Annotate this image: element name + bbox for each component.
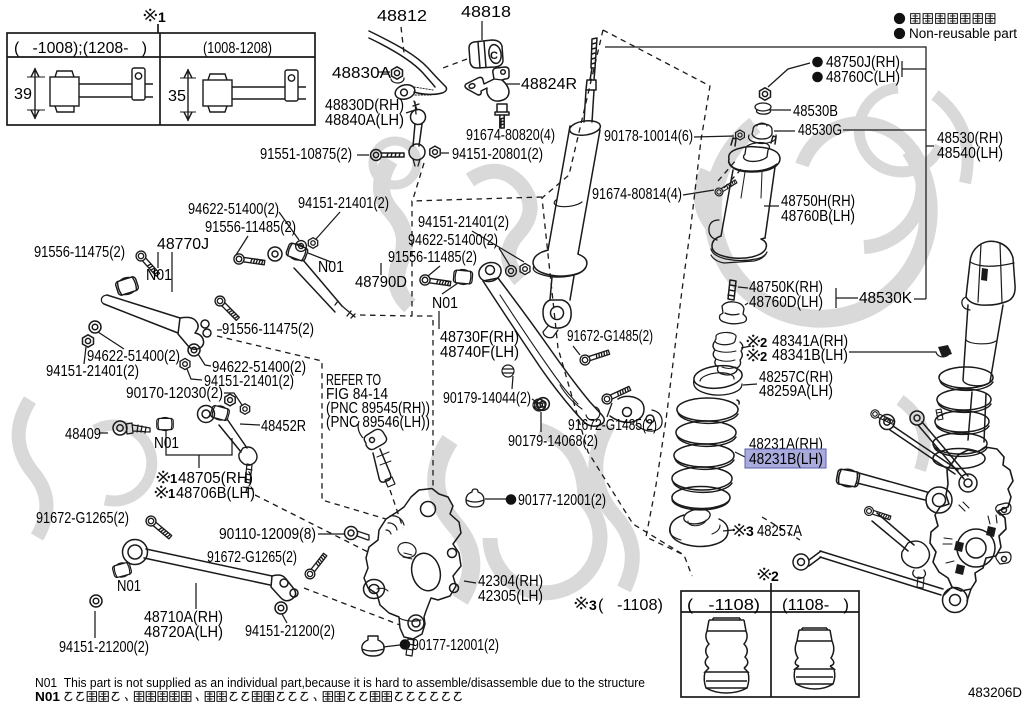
- svg-text:90177-12001(2): 90177-12001(2): [518, 492, 606, 509]
- svg-text:39: 39: [14, 86, 32, 103]
- svg-text:N01: N01: [117, 578, 141, 595]
- svg-text:2: 2: [760, 335, 767, 350]
- svg-text:91551-10875(2): 91551-10875(2): [260, 146, 352, 163]
- svg-text:94151-21200(2): 94151-21200(2): [245, 623, 335, 640]
- svg-text:48341B(LH): 48341B(LH): [772, 347, 848, 364]
- svg-text:35: 35: [168, 88, 186, 105]
- svg-text:1: 1: [168, 486, 175, 501]
- svg-text:N01: N01: [318, 259, 344, 276]
- svg-text:3: 3: [589, 597, 597, 613]
- svg-text:48760C(LH): 48760C(LH): [826, 69, 900, 86]
- svg-text:( -1008);(1208- ): ( -1008);(1208- ): [14, 40, 147, 57]
- svg-text:90179-14044(2): 90179-14044(2): [443, 390, 531, 407]
- svg-text:N01: N01: [146, 267, 172, 284]
- svg-text:94151-21200(2): 94151-21200(2): [59, 639, 149, 656]
- svg-text:48231B(LH): 48231B(LH): [749, 451, 823, 468]
- svg-text:3: 3: [746, 523, 754, 539]
- svg-text:( -1108): ( -1108): [687, 597, 760, 614]
- svg-text:91672-G1265(2): 91672-G1265(2): [207, 549, 297, 566]
- svg-text:91556-11475(2): 91556-11475(2): [222, 321, 314, 338]
- svg-text:N01: N01: [432, 295, 458, 312]
- svg-text:( -1108): ( -1108): [598, 597, 663, 614]
- svg-text:94151-21401(2): 94151-21401(2): [298, 195, 389, 212]
- svg-text:48740F(LH): 48740F(LH): [440, 344, 519, 361]
- svg-text:91556-11485(2): 91556-11485(2): [388, 249, 477, 266]
- svg-text:42305(LH): 42305(LH): [478, 588, 543, 605]
- svg-text:91674-80814(4): 91674-80814(4): [592, 186, 682, 203]
- svg-text:(PNC 89546(LH)): (PNC 89546(LH)): [326, 414, 430, 431]
- svg-text:94622-51400(2): 94622-51400(2): [188, 201, 279, 218]
- svg-text:48824R: 48824R: [521, 76, 577, 93]
- svg-text:91672-G1485(2): 91672-G1485(2): [568, 417, 657, 434]
- svg-text:1: 1: [158, 9, 166, 25]
- svg-text:94151-21401(2): 94151-21401(2): [46, 363, 139, 380]
- svg-text:94622-51400(2): 94622-51400(2): [408, 232, 498, 249]
- svg-text:N01: N01: [35, 690, 60, 704]
- svg-text:N01: N01: [154, 435, 179, 452]
- svg-text:91672-G1485(2): 91672-G1485(2): [567, 328, 653, 345]
- svg-text:48530B: 48530B: [793, 103, 838, 120]
- svg-text:1: 1: [170, 471, 177, 486]
- svg-text:2: 2: [771, 568, 779, 584]
- svg-text:48257A: 48257A: [757, 523, 802, 540]
- svg-text:48760B(LH): 48760B(LH): [781, 208, 855, 225]
- svg-text:48770J: 48770J: [157, 236, 209, 253]
- svg-text:(1008-1208): (1008-1208): [203, 40, 272, 57]
- svg-text:48540(LH): 48540(LH): [937, 145, 1003, 162]
- svg-text:(1108- ): (1108- ): [782, 597, 849, 614]
- svg-text:48720A(LH): 48720A(LH): [144, 624, 223, 641]
- svg-text:94151-21401(2): 94151-21401(2): [418, 214, 509, 231]
- svg-text:48840A(LH): 48840A(LH): [325, 112, 404, 129]
- svg-text:48760D(LH): 48760D(LH): [749, 294, 823, 311]
- svg-text:48530G: 48530G: [798, 122, 842, 139]
- svg-text:91674-80820(4): 91674-80820(4): [466, 127, 555, 144]
- svg-text:N01 This part is not supplied: N01 This part is not supplied as an indi…: [35, 676, 645, 690]
- svg-text:91672-G1265(2): 91672-G1265(2): [36, 510, 129, 527]
- svg-text:48830A: 48830A: [332, 65, 391, 82]
- svg-text:48812: 48812: [377, 8, 427, 25]
- svg-text:Non-reusable part: Non-reusable part: [909, 26, 1017, 41]
- svg-text:48790D: 48790D: [355, 274, 407, 291]
- svg-text:90177-12001(2): 90177-12001(2): [412, 637, 499, 654]
- svg-text:C: C: [490, 50, 498, 62]
- svg-text:91556-11485(2): 91556-11485(2): [205, 219, 296, 236]
- svg-text:48259A(LH): 48259A(LH): [759, 383, 833, 400]
- svg-text:48530K: 48530K: [859, 290, 912, 307]
- svg-text:483206D: 483206D: [968, 685, 1022, 700]
- svg-text:48706B(LH): 48706B(LH): [176, 485, 255, 502]
- svg-text:90170-12030(2): 90170-12030(2): [126, 385, 223, 402]
- svg-text:90178-10014(6): 90178-10014(6): [604, 128, 693, 145]
- svg-text:90179-14068(2): 90179-14068(2): [508, 433, 598, 450]
- svg-text:91556-11475(2): 91556-11475(2): [34, 244, 125, 261]
- svg-text:90110-12009(8): 90110-12009(8): [219, 526, 316, 543]
- svg-text:94151-20801(2): 94151-20801(2): [452, 146, 543, 163]
- svg-text:48452R: 48452R: [261, 418, 306, 435]
- svg-text:48818: 48818: [461, 4, 511, 21]
- svg-text:2: 2: [760, 349, 767, 364]
- svg-text:48409: 48409: [65, 426, 101, 443]
